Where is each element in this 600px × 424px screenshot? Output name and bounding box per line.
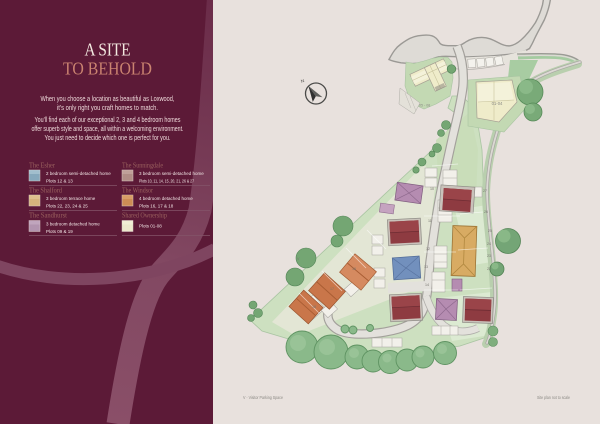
- svg-text:05 - 08: 05 - 08: [419, 104, 430, 108]
- svg-text:The Shalford: The Shalford: [29, 186, 62, 195]
- svg-text:22: 22: [487, 267, 491, 271]
- svg-text:it’s only right you craft home: it’s only right you craft homes to match…: [57, 105, 158, 112]
- svg-text:The Sunningdale: The Sunningdale: [122, 161, 164, 170]
- svg-text:Plots 09 & 19: Plots 09 & 19: [46, 229, 73, 234]
- svg-text:When you choose a location as: When you choose a location as beautiful …: [41, 96, 175, 103]
- svg-text:The Sandhurst: The Sandhurst: [29, 211, 68, 220]
- svg-text:14: 14: [425, 283, 429, 287]
- svg-text:The Esher: The Esher: [29, 161, 55, 170]
- svg-text:V - Visitor Parking Space: V - Visitor Parking Space: [243, 395, 283, 400]
- svg-text:10: 10: [430, 187, 434, 191]
- svg-text:12: 12: [426, 247, 430, 251]
- svg-text:16: 16: [352, 267, 356, 271]
- svg-text:23: 23: [487, 254, 491, 258]
- svg-text:17: 17: [330, 287, 334, 291]
- svg-text:25: 25: [488, 229, 492, 233]
- svg-text:You just need to decide which: You just need to decide which one is per…: [45, 135, 171, 142]
- svg-text:Shared Ownership: Shared Ownership: [122, 211, 167, 220]
- svg-text:Plots 16, 17 & 18: Plots 16, 17 & 18: [139, 204, 174, 209]
- svg-text:13: 13: [424, 265, 428, 269]
- svg-text:27: 27: [483, 189, 487, 193]
- svg-text:The Windsor: The Windsor: [122, 186, 153, 195]
- svg-text:You’ll find each of our except: You’ll find each of our exceptional 2, 3…: [35, 117, 181, 124]
- svg-text:26: 26: [484, 210, 488, 214]
- svg-text:TO BEHOLD: TO BEHOLD: [63, 59, 152, 79]
- svg-text:3 bedroom terrace home: 3 bedroom terrace home: [46, 196, 96, 201]
- svg-text:01-04: 01-04: [492, 101, 503, 106]
- svg-text:offer superb style and space,: offer superb style and space, all within…: [32, 126, 184, 133]
- svg-text:Plots 10, 11, 14, 15, 20, 21,: Plots 10, 11, 14, 15, 20, 21, 26 & 27: [139, 179, 194, 184]
- svg-text:3 bedroom semi-detached home: 3 bedroom semi-detached home: [139, 171, 204, 176]
- svg-text:Site plan not to scale: Site plan not to scale: [537, 395, 570, 400]
- svg-text:Plots 01-08: Plots 01-08: [139, 224, 162, 229]
- svg-text:Plots 22, 23, 24 & 25: Plots 22, 23, 24 & 25: [46, 204, 88, 209]
- svg-text:4 bedroom detached home: 4 bedroom detached home: [139, 196, 193, 201]
- svg-text:3 bedroom detached home: 3 bedroom detached home: [46, 222, 100, 227]
- svg-text:A SITE: A SITE: [85, 40, 131, 60]
- svg-text:11: 11: [428, 219, 432, 223]
- svg-text:2 bedroom semi-detached home: 2 bedroom semi-detached home: [46, 171, 111, 176]
- svg-text:18: 18: [312, 305, 316, 309]
- svg-text:24: 24: [487, 242, 491, 246]
- svg-text:Plots 12 & 13: Plots 12 & 13: [46, 179, 73, 184]
